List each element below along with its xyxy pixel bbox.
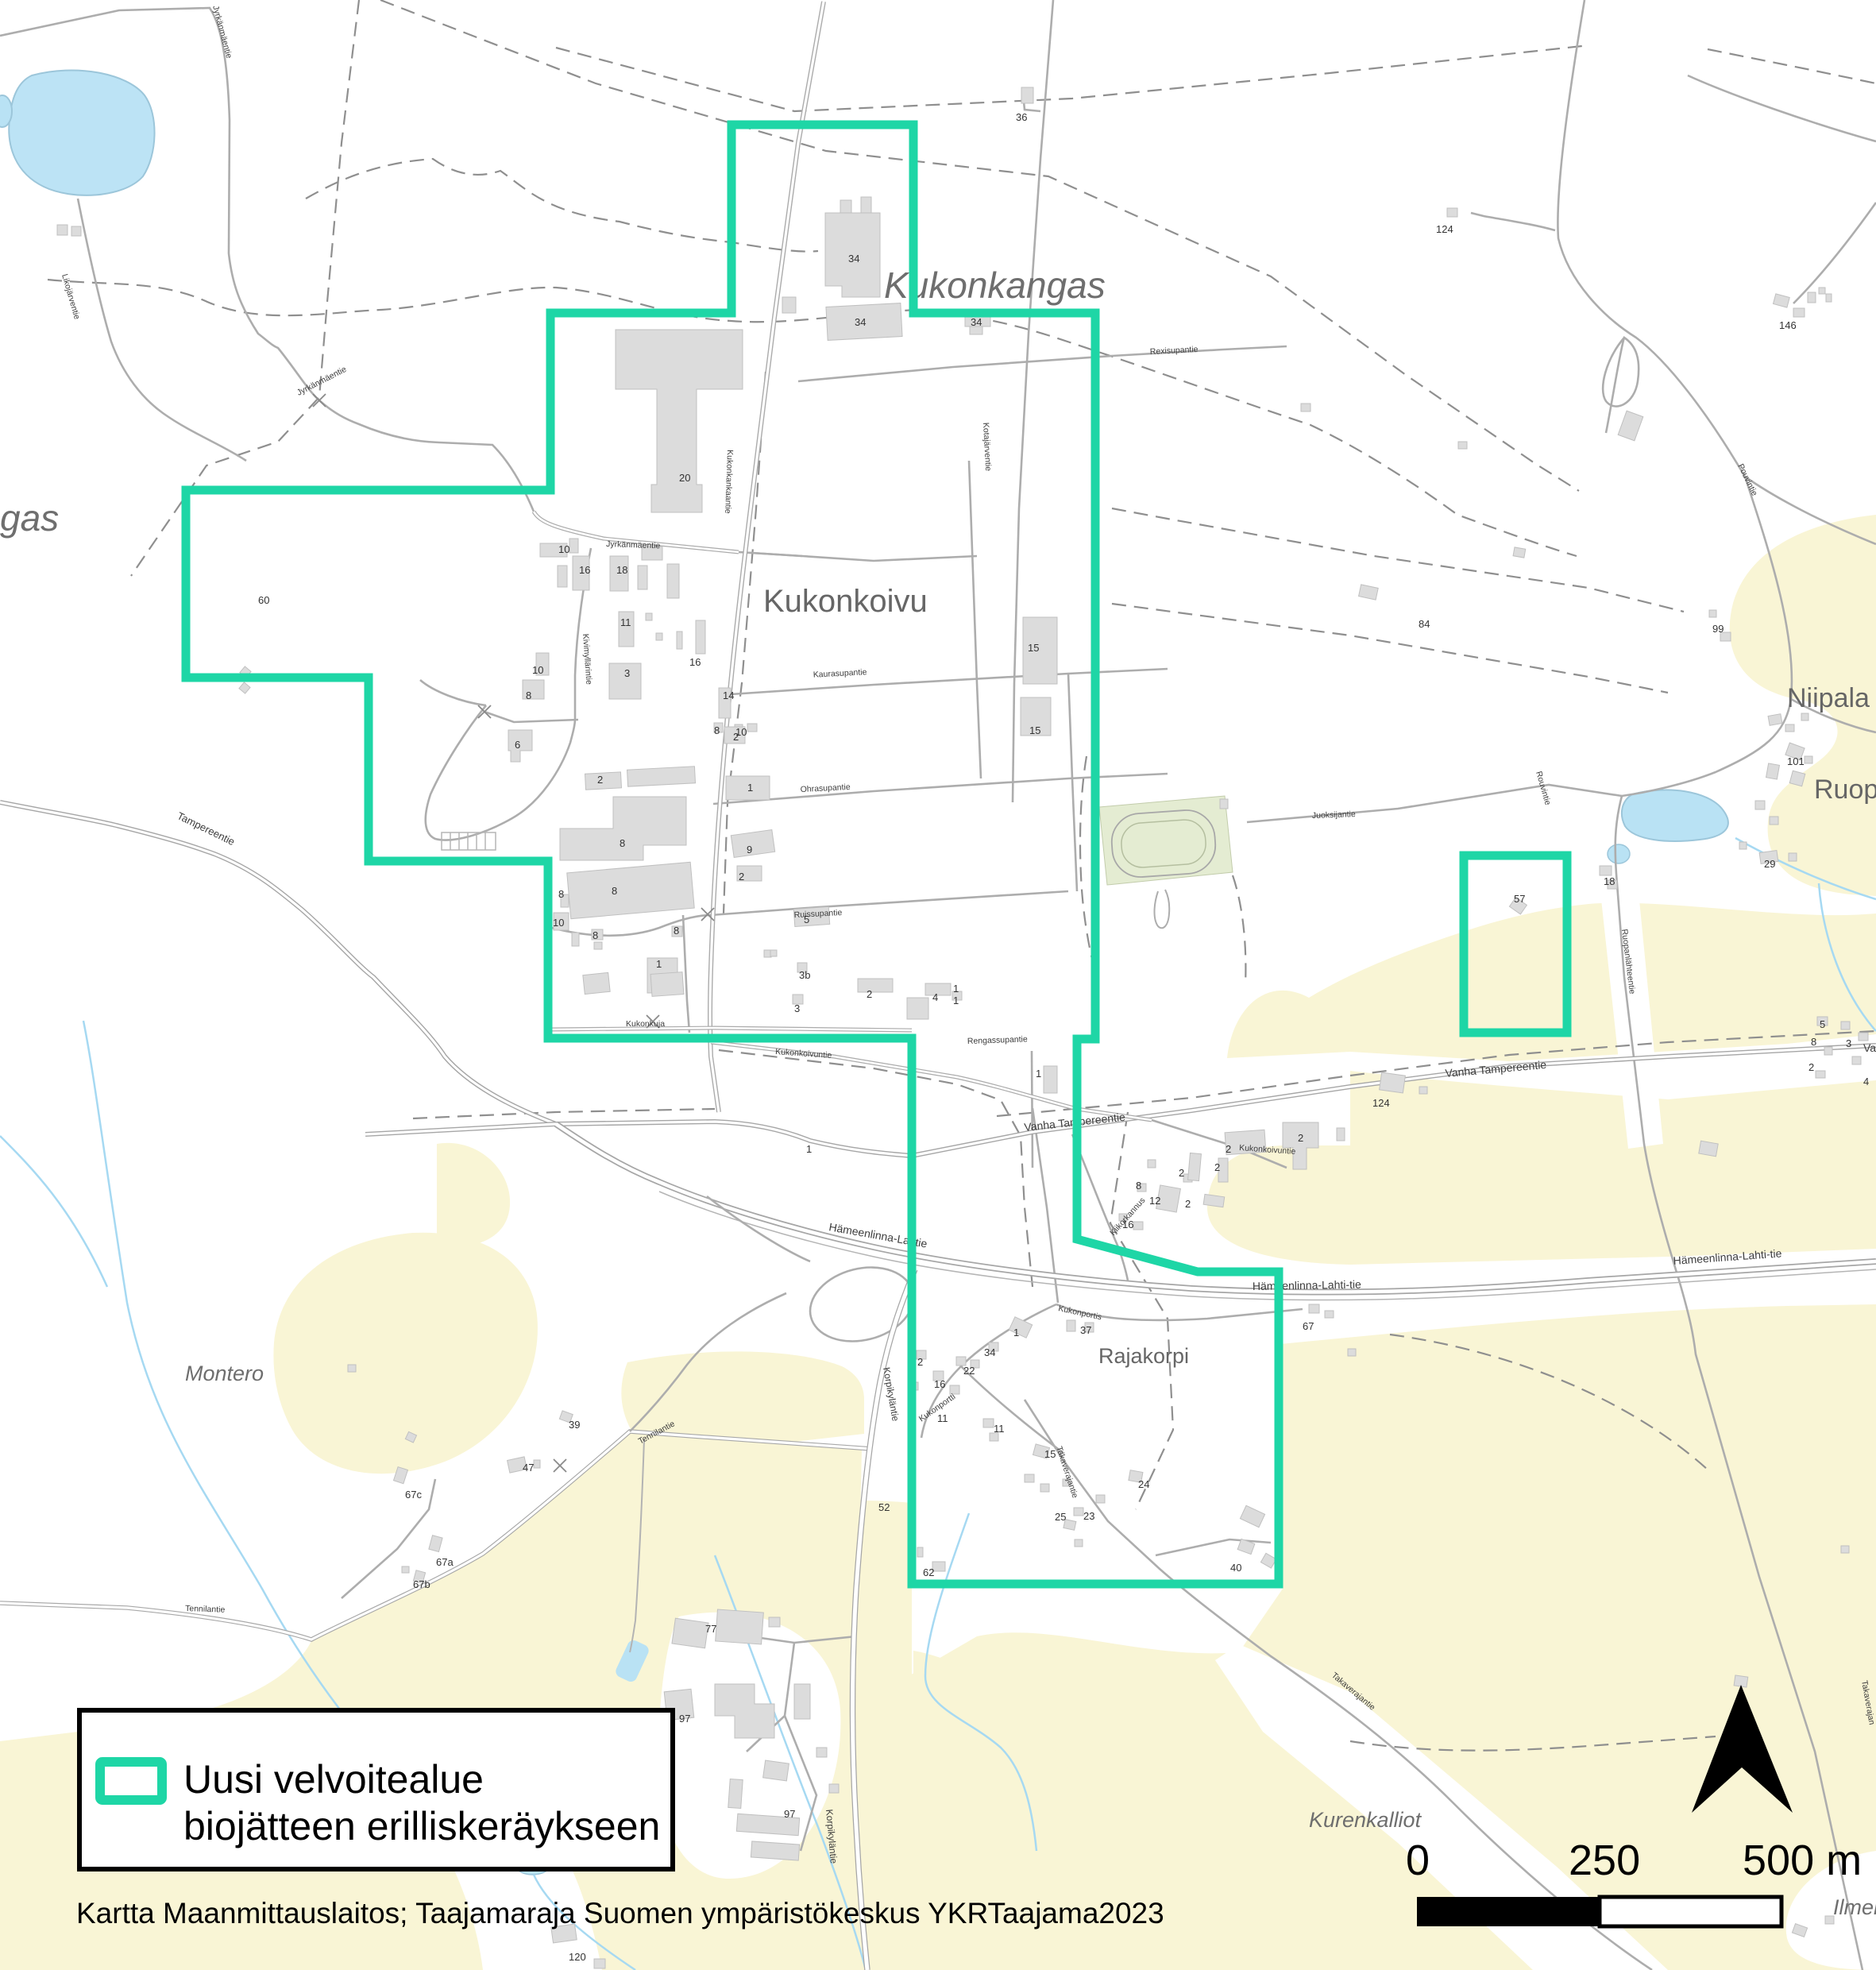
svg-text:60: 60 [258,594,269,606]
svg-text:Niipala: Niipala [1787,683,1870,713]
svg-text:99: 99 [1712,623,1724,635]
svg-text:24: 24 [1138,1478,1149,1490]
svg-text:10: 10 [735,726,747,738]
svg-text:500 m: 500 m [1743,1837,1862,1884]
svg-text:18: 18 [616,564,627,576]
svg-text:14: 14 [723,689,734,701]
svg-text:36: 36 [1016,111,1027,123]
svg-text:2: 2 [867,988,872,1000]
svg-text:101: 101 [1787,755,1805,767]
svg-text:Va: Va [1863,1041,1876,1054]
svg-text:8: 8 [1811,1036,1816,1048]
svg-text:Kartta Maanmittauslaitos; Taaj: Kartta Maanmittauslaitos; Taajamaraja Su… [76,1897,1164,1929]
svg-text:Kurenkalliot: Kurenkalliot [1309,1808,1422,1832]
svg-text:1: 1 [953,983,959,995]
svg-text:1: 1 [747,782,753,794]
svg-text:120: 120 [569,1951,586,1963]
svg-text:gas: gas [0,497,59,539]
svg-text:1: 1 [953,995,959,1006]
svg-text:Kukonkoivu: Kukonkoivu [763,584,928,619]
svg-text:3: 3 [1846,1037,1851,1049]
svg-text:biojätteen erilliskeräykseen: biojätteen erilliskeräykseen [183,1804,660,1848]
svg-text:62: 62 [923,1566,934,1578]
svg-text:67b: 67b [413,1578,430,1590]
svg-text:0: 0 [1406,1837,1430,1884]
svg-text:15: 15 [1028,642,1039,654]
svg-text:2: 2 [1185,1198,1191,1210]
svg-text:12: 12 [1149,1195,1160,1207]
svg-text:1: 1 [1036,1068,1041,1080]
svg-text:16: 16 [1122,1219,1133,1230]
svg-text:9: 9 [747,844,752,856]
svg-text:16: 16 [934,1378,945,1390]
svg-text:52: 52 [878,1501,890,1513]
svg-text:10: 10 [558,543,569,555]
svg-text:11: 11 [937,1412,948,1424]
svg-text:2: 2 [1298,1132,1303,1144]
svg-text:124: 124 [1436,223,1453,235]
svg-text:3: 3 [794,1002,800,1014]
svg-text:3: 3 [624,667,630,679]
svg-text:8: 8 [593,929,598,941]
svg-text:8: 8 [526,689,531,701]
svg-text:3b: 3b [799,969,810,981]
svg-text:67a: 67a [436,1556,454,1568]
svg-text:4: 4 [932,991,938,1003]
svg-text:146: 146 [1779,319,1797,331]
svg-text:18: 18 [1604,875,1615,887]
svg-text:1: 1 [656,958,662,970]
svg-text:97: 97 [784,1808,795,1820]
svg-text:10: 10 [553,917,564,929]
svg-text:23: 23 [1083,1510,1094,1522]
svg-text:16: 16 [689,656,701,668]
svg-text:2: 2 [1226,1143,1231,1155]
svg-text:8: 8 [1136,1180,1141,1192]
svg-text:8: 8 [620,837,625,849]
svg-text:34: 34 [855,316,866,328]
svg-text:5: 5 [804,914,809,925]
svg-text:6: 6 [515,739,520,751]
svg-text:16: 16 [579,564,590,576]
svg-text:11: 11 [994,1423,1005,1435]
svg-text:34: 34 [984,1346,995,1358]
svg-text:39: 39 [569,1419,580,1431]
svg-text:15: 15 [1044,1448,1056,1460]
svg-text:34: 34 [848,253,859,265]
svg-text:84: 84 [1419,618,1430,630]
svg-text:Uusi velvoitealue: Uusi velvoitealue [183,1757,484,1802]
svg-text:Jyrkänmäentie: Jyrkänmäentie [606,539,661,550]
svg-text:124: 124 [1372,1097,1390,1109]
svg-text:67: 67 [1303,1320,1314,1332]
svg-text:Ruopp: Ruopp [1814,774,1876,805]
svg-text:Tennilantie: Tennilantie [185,1604,226,1615]
svg-text:10: 10 [532,664,543,676]
svg-text:1: 1 [1013,1327,1019,1338]
svg-text:2: 2 [739,871,744,883]
svg-text:29: 29 [1764,858,1775,870]
svg-text:8: 8 [558,888,564,900]
svg-text:57: 57 [1514,893,1525,905]
svg-text:5: 5 [1820,1018,1825,1030]
svg-text:11: 11 [620,616,631,628]
svg-text:Juoksijantie: Juoksijantie [1312,809,1356,821]
svg-text:2: 2 [917,1356,923,1368]
svg-text:2: 2 [1179,1167,1184,1179]
svg-text:Hämeenlinna-Lahti-tie: Hämeenlinna-Lahti-tie [1253,1278,1361,1292]
svg-text:1: 1 [806,1143,812,1155]
svg-text:77: 77 [705,1623,716,1635]
svg-text:67c: 67c [405,1489,422,1501]
svg-text:8: 8 [714,724,720,736]
svg-text:15: 15 [1029,724,1040,736]
svg-text:34: 34 [971,316,982,328]
svg-text:4: 4 [1863,1076,1869,1087]
svg-text:97: 97 [679,1713,690,1725]
svg-text:20: 20 [679,472,690,484]
svg-text:Ilmem: Ilmem [1833,1895,1876,1919]
svg-text:2: 2 [1214,1161,1220,1173]
svg-text:Montero: Montero [185,1362,264,1385]
svg-text:37: 37 [1080,1324,1091,1336]
svg-text:2: 2 [1808,1061,1814,1073]
svg-text:22: 22 [963,1365,975,1377]
svg-text:25: 25 [1055,1511,1066,1523]
svg-text:Kukonkuja: Kukonkuja [626,1019,665,1029]
svg-text:47: 47 [523,1462,534,1474]
svg-text:8: 8 [674,925,679,937]
svg-text:40: 40 [1230,1562,1241,1574]
svg-text:8: 8 [612,885,617,897]
svg-text:Rajakorpi: Rajakorpi [1098,1344,1189,1368]
svg-text:2: 2 [597,774,603,786]
svg-text:250: 250 [1569,1837,1640,1884]
